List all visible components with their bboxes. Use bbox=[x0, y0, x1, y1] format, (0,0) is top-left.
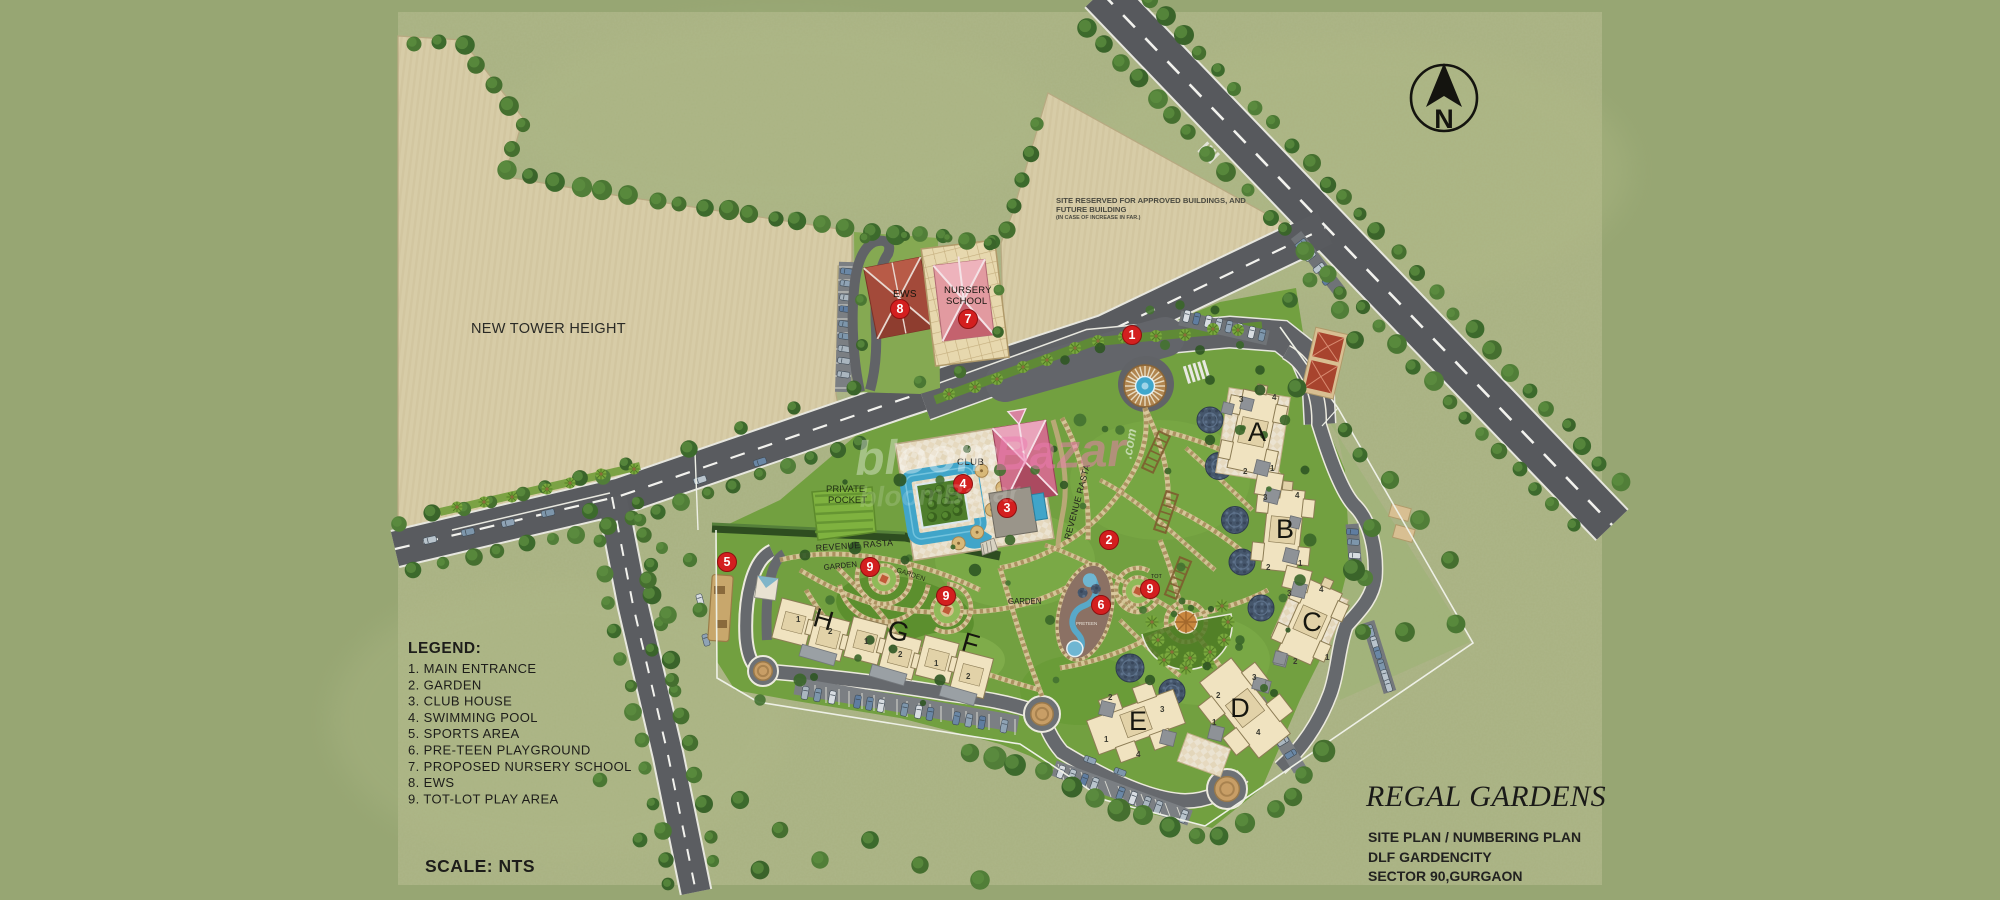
svg-text:2: 2 bbox=[1293, 657, 1298, 666]
svg-text:2. GARDEN: 2. GARDEN bbox=[408, 677, 482, 692]
svg-text:1: 1 bbox=[864, 637, 869, 646]
svg-text:4: 4 bbox=[1319, 585, 1324, 594]
svg-text:E: E bbox=[1129, 706, 1147, 736]
svg-text:bloomBazar: bloomBazar bbox=[859, 476, 1022, 513]
svg-text:(IN CASE OF INCREASE IN FAR.): (IN CASE OF INCREASE IN FAR.) bbox=[1056, 215, 1141, 221]
svg-text:GARDEN: GARDEN bbox=[1008, 597, 1041, 606]
svg-text:4. SWIMMING POOL: 4. SWIMMING POOL bbox=[408, 710, 538, 725]
svg-text:4: 4 bbox=[1136, 750, 1141, 759]
svg-text:LEGEND:: LEGEND: bbox=[408, 640, 481, 657]
svg-text:9: 9 bbox=[943, 589, 950, 603]
svg-text:SCHOOL: SCHOOL bbox=[946, 296, 987, 307]
svg-text:1: 1 bbox=[1212, 718, 1217, 727]
svg-text:3: 3 bbox=[1239, 395, 1244, 404]
svg-text:REGAL GARDENS: REGAL GARDENS bbox=[1365, 780, 1606, 813]
svg-text:NEW TOWER HEIGHT: NEW TOWER HEIGHT bbox=[471, 321, 626, 337]
svg-text:8. EWS: 8. EWS bbox=[408, 775, 454, 790]
svg-text:SITE RESERVED FOR APPROVED BUI: SITE RESERVED FOR APPROVED BUILDINGS, AN… bbox=[1056, 196, 1246, 205]
svg-text:2: 2 bbox=[1216, 691, 1221, 700]
svg-text:3: 3 bbox=[1252, 673, 1257, 682]
svg-text:9: 9 bbox=[867, 560, 874, 574]
svg-text:A: A bbox=[1248, 417, 1266, 447]
svg-text:NURSERY: NURSERY bbox=[944, 285, 992, 296]
svg-text:3: 3 bbox=[1287, 589, 1292, 598]
svg-text:SITE PLAN / NUMBERING PLAN: SITE PLAN / NUMBERING PLAN bbox=[1368, 829, 1581, 845]
svg-text:D: D bbox=[1230, 693, 1250, 723]
svg-text:SECTOR 90,GURGAON: SECTOR 90,GURGAON bbox=[1368, 868, 1523, 884]
svg-text:4: 4 bbox=[1272, 393, 1277, 402]
svg-text:TOT: TOT bbox=[1151, 574, 1163, 580]
svg-text:9: 9 bbox=[1147, 582, 1154, 596]
svg-text:2: 2 bbox=[828, 627, 833, 636]
svg-text:3: 3 bbox=[1160, 705, 1165, 714]
svg-text:Bazar: Bazar bbox=[994, 424, 1129, 482]
svg-text:C: C bbox=[1302, 607, 1322, 637]
svg-text:3: 3 bbox=[1263, 493, 1268, 502]
svg-text:1: 1 bbox=[1129, 328, 1136, 342]
svg-text:7: 7 bbox=[965, 312, 972, 326]
svg-text:1: 1 bbox=[1270, 464, 1275, 473]
svg-text:9. TOT-LOT PLAY AREA: 9. TOT-LOT PLAY AREA bbox=[408, 791, 559, 806]
svg-text:1: 1 bbox=[934, 659, 939, 668]
svg-text:2: 2 bbox=[1106, 533, 1113, 547]
svg-text:3. CLUB HOUSE: 3. CLUB HOUSE bbox=[408, 694, 512, 709]
svg-text:2: 2 bbox=[1243, 467, 1248, 476]
svg-text:2: 2 bbox=[1108, 693, 1113, 702]
svg-text:PRETEEN: PRETEEN bbox=[1076, 621, 1097, 626]
svg-text:2: 2 bbox=[966, 672, 971, 681]
svg-text:B: B bbox=[1276, 514, 1294, 544]
svg-text:1: 1 bbox=[1298, 559, 1303, 568]
svg-text:2: 2 bbox=[898, 650, 903, 659]
svg-text:5. SPORTS AREA: 5. SPORTS AREA bbox=[408, 726, 520, 741]
svg-text:1: 1 bbox=[1104, 735, 1109, 744]
svg-text:6: 6 bbox=[1098, 598, 1105, 612]
svg-text:2: 2 bbox=[1266, 563, 1271, 572]
svg-text:EWS: EWS bbox=[893, 289, 917, 300]
svg-text:SCALE: NTS: SCALE: NTS bbox=[425, 856, 535, 876]
svg-text:DLF GARDENCITY: DLF GARDENCITY bbox=[1368, 849, 1492, 865]
svg-text:N: N bbox=[1434, 104, 1454, 134]
svg-text:6. PRE-TEEN PLAYGROUND: 6. PRE-TEEN PLAYGROUND bbox=[408, 743, 591, 758]
svg-text:4: 4 bbox=[1295, 491, 1300, 500]
svg-text:1. MAIN ENTRANCE: 1. MAIN ENTRANCE bbox=[408, 661, 536, 676]
svg-text:1: 1 bbox=[796, 615, 801, 624]
svg-text:5: 5 bbox=[724, 555, 731, 569]
svg-text:FUTURE BUILDING: FUTURE BUILDING bbox=[1056, 205, 1126, 214]
svg-text:7. PROPOSED NURSERY SCHOOL: 7. PROPOSED NURSERY SCHOOL bbox=[408, 759, 632, 774]
svg-text:1: 1 bbox=[1325, 653, 1330, 662]
svg-text:4: 4 bbox=[1256, 728, 1261, 737]
svg-text:8: 8 bbox=[897, 302, 904, 316]
